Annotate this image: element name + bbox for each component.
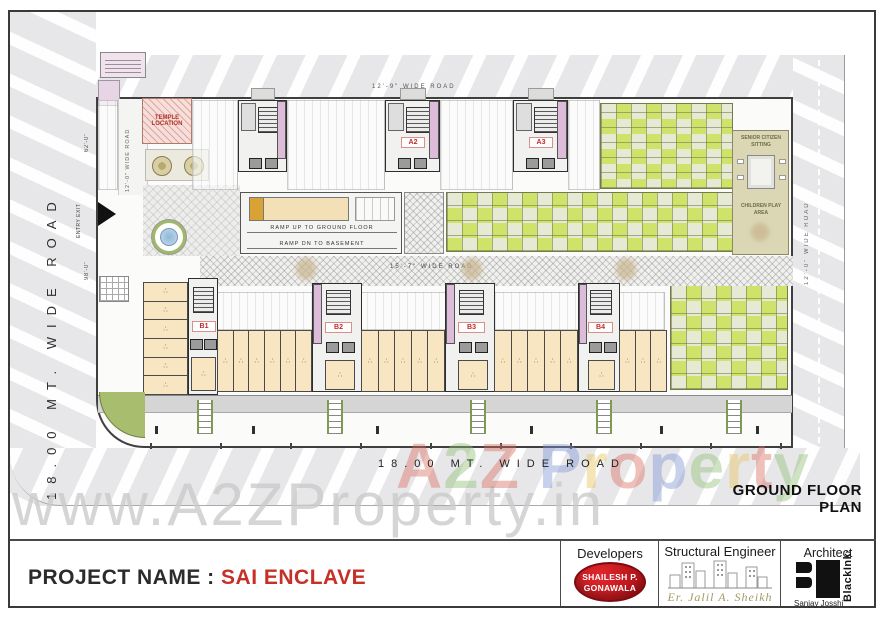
footer-divider bbox=[10, 539, 876, 541]
tree-icon bbox=[296, 258, 316, 280]
shops-row-2: ∴∴∴∴∴ bbox=[362, 330, 445, 392]
shop-icon: ∴ bbox=[163, 344, 167, 351]
ramp-dn-label: RAMP DN TO BASEMENT bbox=[247, 241, 397, 249]
staircase bbox=[326, 290, 351, 315]
shop-icon: ∴ bbox=[471, 372, 475, 379]
bollard bbox=[252, 426, 255, 434]
shop-icon: ∴ bbox=[286, 358, 290, 365]
shop-unit: ∴ bbox=[619, 330, 636, 392]
shop-icon: ∴ bbox=[239, 358, 243, 365]
architect-heading: Architect bbox=[786, 546, 870, 560]
garden-top-right bbox=[600, 103, 733, 189]
skyline-logo-icon bbox=[668, 558, 772, 590]
tree-icon bbox=[616, 258, 636, 280]
staircase bbox=[258, 107, 279, 133]
developer-logo: SHAILESH P. GONAWALA bbox=[574, 562, 646, 602]
temple-location: TEMPLE LOCATION bbox=[142, 98, 192, 144]
shop-unit: ∴ bbox=[143, 375, 188, 395]
bench bbox=[737, 159, 744, 164]
bottom-road-label: 18.00 MT. WIDE ROAD bbox=[378, 458, 626, 470]
shop-unit: ∴ bbox=[191, 357, 216, 391]
note-box bbox=[100, 52, 146, 78]
shop-unit: ∴ bbox=[560, 330, 578, 392]
inner-left-road-label: 12'-0" WIDE ROAD bbox=[125, 104, 131, 192]
shop-unit: ∴ bbox=[325, 360, 355, 390]
lobby-room bbox=[388, 103, 404, 131]
plan-title: GROUND FLOOR PLAN bbox=[700, 482, 862, 516]
structural-heading: Structural Engineer bbox=[664, 544, 776, 559]
flat-outline bbox=[440, 100, 513, 190]
building-core-b2: B2 ∴ bbox=[312, 283, 362, 392]
bollard bbox=[155, 426, 158, 434]
staircase bbox=[406, 107, 430, 133]
ramp-lanes bbox=[355, 197, 395, 221]
shop-unit: ∴ bbox=[280, 330, 297, 392]
crossing-ladder bbox=[470, 400, 486, 434]
staircase bbox=[193, 287, 214, 313]
shop-icon: ∴ bbox=[163, 363, 167, 370]
shop-unit: ∴ bbox=[411, 330, 429, 392]
lift-shaft bbox=[557, 101, 567, 159]
shop-icon: ∴ bbox=[301, 358, 305, 365]
ramp-landing bbox=[250, 198, 264, 220]
shop-icon: ∴ bbox=[201, 371, 205, 378]
toilet bbox=[526, 158, 539, 169]
project-name-block: PROJECT NAME : SAI ENCLAVE bbox=[28, 566, 366, 590]
lobby-room bbox=[516, 103, 532, 131]
shop-icon: ∴ bbox=[656, 358, 660, 365]
shop-icon: ∴ bbox=[434, 358, 438, 365]
shop-unit: ∴ bbox=[143, 319, 188, 339]
shop-icon: ∴ bbox=[401, 358, 405, 365]
pavilion bbox=[747, 155, 775, 189]
bench bbox=[779, 159, 786, 164]
canopy bbox=[528, 88, 554, 100]
developers-heading: Developers bbox=[566, 546, 654, 561]
building-core-b3: B3 ∴ bbox=[445, 283, 495, 392]
building-label-a2: A2 bbox=[401, 137, 425, 148]
developer-name-line1: SHAILESH P. bbox=[576, 572, 644, 583]
building-core-a3: A3 bbox=[513, 100, 568, 172]
building-label-b4: B4 bbox=[588, 322, 613, 333]
lobby-room bbox=[241, 103, 256, 131]
staircase bbox=[534, 107, 558, 133]
right-road-label: 12'-0" WIDE ROAD bbox=[804, 125, 810, 285]
shop-unit: ∴ bbox=[394, 330, 412, 392]
note-lines bbox=[105, 57, 141, 73]
toilet bbox=[398, 158, 411, 169]
staircase bbox=[590, 290, 612, 315]
shop-unit: ∴ bbox=[378, 330, 396, 392]
shop-icon: ∴ bbox=[384, 358, 388, 365]
shop-unit: ∴ bbox=[143, 282, 188, 302]
entry-arrow-icon bbox=[98, 202, 116, 226]
shop-unit: ∴ bbox=[233, 330, 250, 392]
shop-unit: ∴ bbox=[361, 330, 379, 392]
shop-unit: ∴ bbox=[248, 330, 265, 392]
shop-unit: ∴ bbox=[458, 360, 488, 390]
middle-road bbox=[200, 256, 793, 286]
shop-icon: ∴ bbox=[625, 358, 629, 365]
ramp-up-label: RAMP UP TO GROUND FLOOR bbox=[247, 225, 397, 233]
flat-outline bbox=[568, 100, 600, 190]
shop-unit: ∴ bbox=[544, 330, 562, 392]
shop-icon: ∴ bbox=[163, 288, 167, 295]
ramp-deck bbox=[249, 197, 349, 221]
lift-shaft bbox=[579, 284, 587, 344]
shop-unit: ∴ bbox=[494, 330, 512, 392]
lift-shaft bbox=[277, 101, 286, 159]
lift-shaft bbox=[313, 284, 322, 344]
shop-icon: ∴ bbox=[641, 358, 645, 365]
children-play-label: CHILDREN PLAY AREA bbox=[735, 203, 787, 216]
shop-icon: ∴ bbox=[517, 358, 521, 365]
toilet bbox=[326, 342, 339, 353]
flat-outline bbox=[192, 100, 238, 190]
right-road-centerline bbox=[818, 60, 820, 443]
architect-name: Sanjay Josshi bbox=[794, 599, 843, 608]
watermark-letter: p bbox=[648, 430, 688, 502]
shop-icon: ∴ bbox=[567, 358, 571, 365]
shops-row-4: ∴∴∴ bbox=[620, 330, 667, 392]
senior-sitting-label: SENIOR CITIZEN SITTING bbox=[735, 135, 787, 148]
shops-left-column: ∴∴∴∴∴∴ bbox=[143, 283, 188, 395]
canopy bbox=[251, 88, 275, 100]
shops-row-1: ∴∴∴∴∴∴ bbox=[218, 330, 312, 392]
dimension-label: 62'-0" bbox=[84, 112, 90, 152]
toilet bbox=[204, 339, 217, 350]
shop-icon: ∴ bbox=[501, 358, 505, 365]
toilet bbox=[190, 339, 203, 350]
shop-icon: ∴ bbox=[368, 358, 372, 365]
shop-icon: ∴ bbox=[163, 382, 167, 389]
parking-grid bbox=[99, 276, 129, 302]
crossing-ladder bbox=[327, 400, 343, 434]
lift-shaft bbox=[446, 284, 455, 344]
building-core-a1 bbox=[238, 100, 287, 172]
toilet bbox=[265, 158, 278, 169]
tree-icon bbox=[462, 258, 482, 280]
flat-outline bbox=[98, 100, 118, 190]
bollard bbox=[376, 426, 379, 434]
column-divider bbox=[780, 541, 781, 606]
toilet bbox=[589, 342, 602, 353]
toilet bbox=[414, 158, 427, 169]
architect-logo-block bbox=[816, 560, 840, 598]
entry-exit-label: ENTRY EXIT bbox=[76, 192, 82, 238]
column-divider bbox=[658, 541, 659, 606]
garden-bottom-right bbox=[670, 285, 788, 390]
bench bbox=[737, 175, 744, 180]
flat-outline bbox=[287, 100, 385, 190]
garden-band bbox=[446, 192, 733, 252]
shop-unit: ∴ bbox=[143, 301, 188, 321]
building-core-b4: B4 ∴ bbox=[578, 283, 620, 392]
building-label-a3: A3 bbox=[529, 137, 553, 148]
toilet bbox=[249, 158, 262, 169]
building-core-a2: A2 bbox=[385, 100, 440, 172]
senior-citizen-area: SENIOR CITIZEN SITTING CHILDREN PLAY ARE… bbox=[732, 130, 789, 255]
toilet bbox=[459, 342, 472, 353]
shop-icon: ∴ bbox=[534, 358, 538, 365]
shop-icon: ∴ bbox=[223, 358, 227, 365]
tree-icon bbox=[751, 223, 769, 241]
shop-icon: ∴ bbox=[254, 358, 258, 365]
shop-unit: ∴ bbox=[295, 330, 312, 392]
architect-logo-bar bbox=[796, 577, 812, 588]
toilet bbox=[542, 158, 555, 169]
developer-name-line2: GONAWALA bbox=[576, 583, 644, 594]
architect-brand-text: BlackInk bbox=[842, 553, 854, 602]
toilet bbox=[604, 342, 617, 353]
shop-unit: ∴ bbox=[635, 330, 652, 392]
bench bbox=[779, 175, 786, 180]
ramp-block: RAMP UP TO GROUND FLOOR RAMP DN TO BASEM… bbox=[240, 192, 402, 254]
dimension-label: 98'-0" bbox=[84, 240, 90, 280]
shop-icon: ∴ bbox=[550, 358, 554, 365]
shop-unit: ∴ bbox=[427, 330, 445, 392]
lift-shaft bbox=[429, 101, 439, 159]
crossing-ladder bbox=[197, 400, 213, 434]
shop-unit: ∴ bbox=[511, 330, 529, 392]
shop-icon: ∴ bbox=[599, 372, 603, 379]
shop-unit: ∴ bbox=[588, 360, 615, 390]
shop-unit: ∴ bbox=[650, 330, 667, 392]
temple-label-line2: LOCATION bbox=[152, 121, 183, 127]
trademark-symbol: ™ bbox=[845, 546, 851, 553]
canopy bbox=[400, 88, 426, 100]
project-name-label: PROJECT NAME : bbox=[28, 566, 215, 589]
shop-icon: ∴ bbox=[163, 326, 167, 333]
left-road-label: 18.00 MT. WIDE ROAD bbox=[44, 80, 59, 500]
shop-icon: ∴ bbox=[270, 358, 274, 365]
tree-icon bbox=[152, 156, 172, 176]
crossing-ladder bbox=[596, 400, 612, 434]
architect-logo-bar bbox=[796, 562, 812, 573]
shop-unit: ∴ bbox=[143, 338, 188, 358]
shop-unit: ∴ bbox=[143, 357, 188, 377]
shops-row-3: ∴∴∴∴∴ bbox=[495, 330, 578, 392]
floor-plan-sheet: 18.00 MT. WIDE ROAD 18.00 MT. WIDE ROAD … bbox=[0, 0, 888, 618]
structural-engineer-name: Er. Jalil A. Sheikh bbox=[662, 590, 778, 605]
shop-icon: ∴ bbox=[417, 358, 421, 365]
staircase bbox=[459, 290, 484, 315]
building-label-b3: B3 bbox=[458, 322, 485, 333]
building-core-b1: B1 ∴ bbox=[188, 278, 218, 395]
shop-icon: ∴ bbox=[163, 307, 167, 314]
shop-icon: ∴ bbox=[338, 372, 342, 379]
toilet bbox=[342, 342, 355, 353]
fountain-pool bbox=[160, 228, 178, 246]
shop-unit: ∴ bbox=[217, 330, 234, 392]
architect-brand: BlackInk™ bbox=[842, 556, 854, 602]
toilet bbox=[475, 342, 488, 353]
shop-unit: ∴ bbox=[527, 330, 545, 392]
fountain-icon bbox=[152, 220, 186, 254]
column-divider bbox=[560, 541, 561, 606]
project-name-value: SAI ENCLAVE bbox=[221, 566, 366, 589]
top-road bbox=[96, 55, 845, 97]
steps-strip bbox=[404, 192, 444, 254]
building-label-b2: B2 bbox=[325, 322, 352, 333]
shop-unit: ∴ bbox=[264, 330, 281, 392]
crossing-ladder bbox=[726, 400, 742, 434]
building-label-b1: B1 bbox=[192, 321, 216, 332]
